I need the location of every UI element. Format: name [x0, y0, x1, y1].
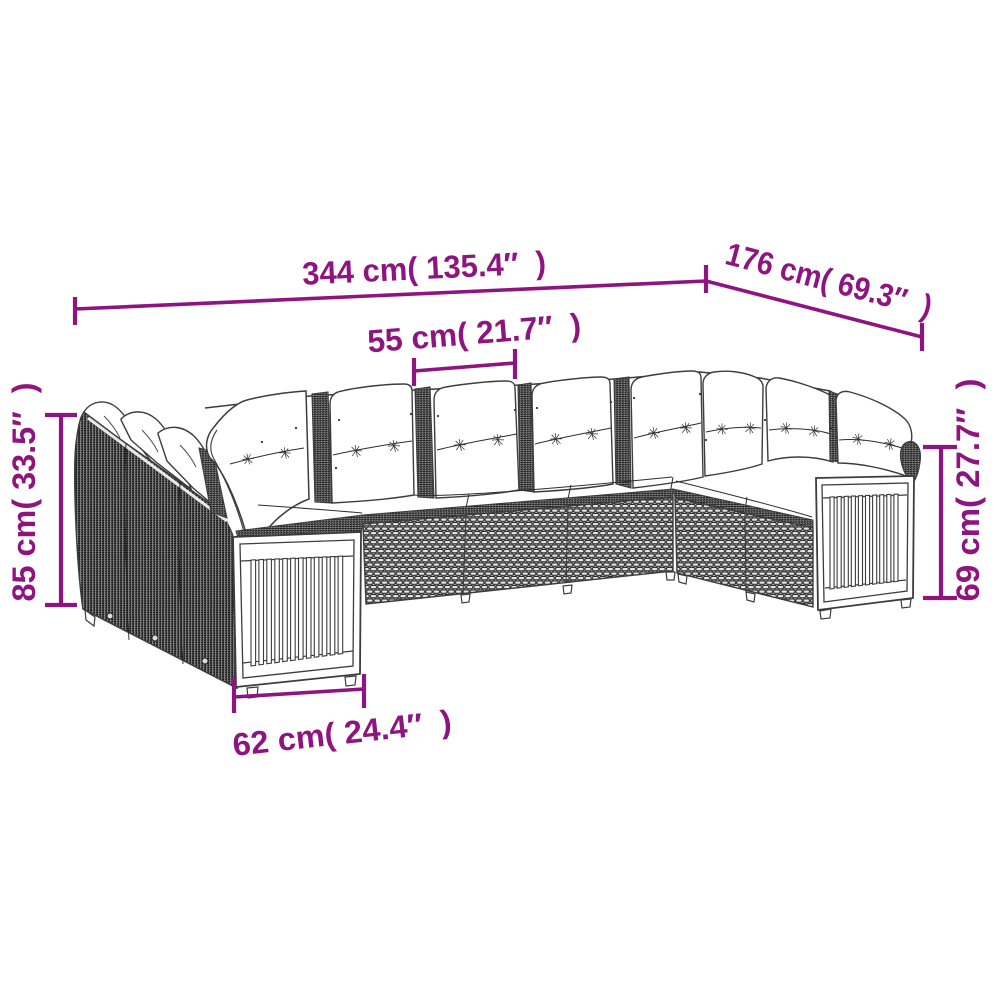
svg-text:85 cm( 33.5″ ): 85 cm( 33.5″ ): [6, 383, 42, 602]
svg-text:69 cm( 27.7″ ): 69 cm( 27.7″ ): [950, 379, 986, 602]
